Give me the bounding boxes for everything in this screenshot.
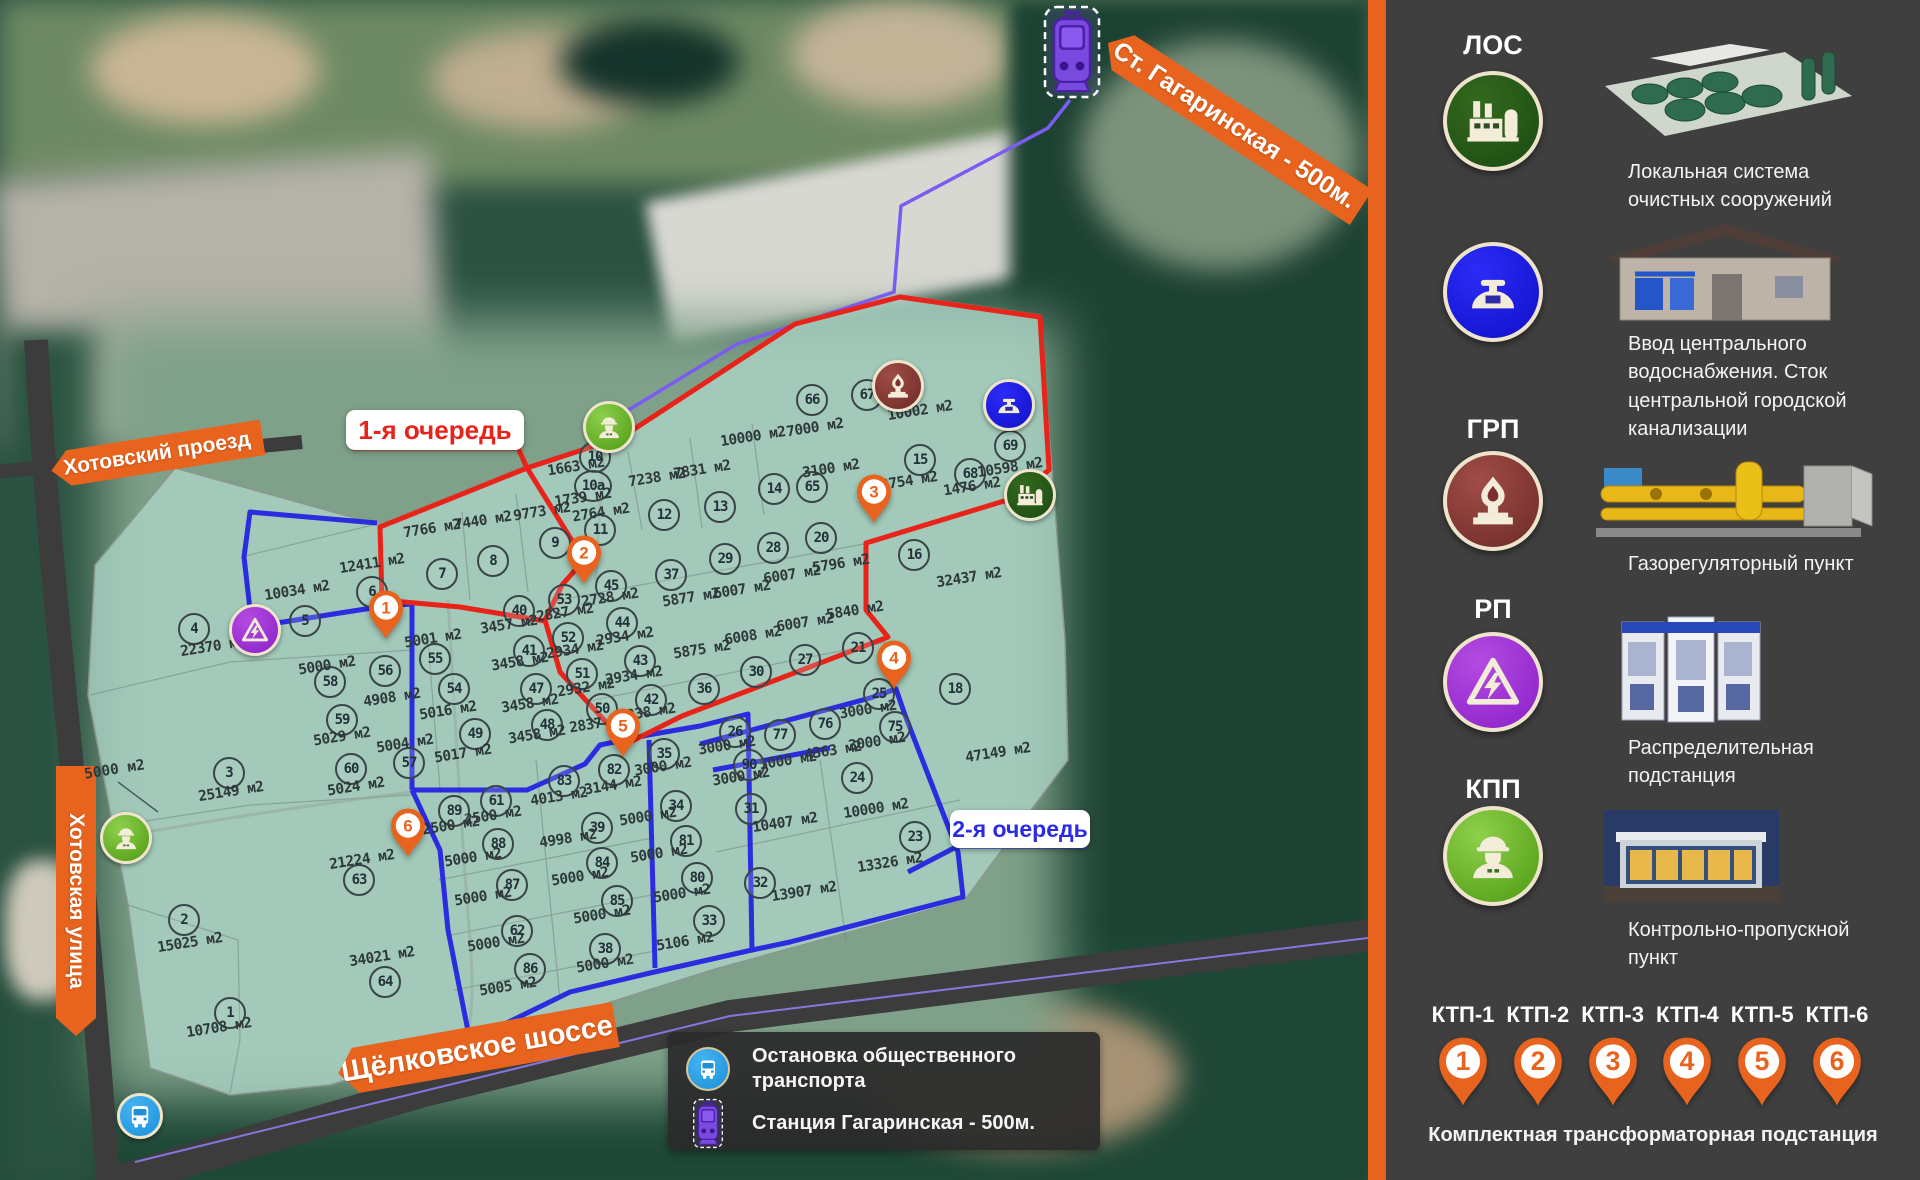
- ktp-pin: 4: [1652, 1034, 1722, 1112]
- ktp-label: КТП-5: [1727, 1002, 1797, 1028]
- ktp-pin: 3: [1578, 1034, 1648, 1112]
- kpp-photo: [1604, 810, 1779, 907]
- ktp-labels-row: КТП-1КТП-2КТП-3КТП-4КТП-5КТП-6: [1428, 1002, 1872, 1028]
- map-legend: Остановка общественного транспорта Станц…: [668, 1032, 1100, 1150]
- legend-bus-row: Остановка общественного транспорта: [686, 1044, 1052, 1094]
- factory-icon: [1443, 71, 1543, 171]
- grp-photo: [1586, 448, 1878, 553]
- section-title-los: ЛОС: [1463, 30, 1522, 61]
- water-photo: [1590, 214, 1860, 335]
- masterplan-infographic: 110708 м2215025 м2325149 м2422370 м25100…: [0, 0, 1920, 1180]
- ktp-pins-row: 123456: [1428, 1034, 1872, 1112]
- rp-photo: [1618, 612, 1768, 735]
- road-banner-ulitsa: Хотовская улица: [56, 766, 96, 1036]
- ktp-pin: 6: [1802, 1034, 1872, 1112]
- ktp-label: КТП-4: [1652, 1002, 1722, 1028]
- ktp-label: КТП-6: [1802, 1002, 1872, 1028]
- ktp-label: КТП-3: [1578, 1002, 1648, 1028]
- svg-text:1: 1: [1456, 1046, 1471, 1076]
- legend-tram-row: Станция Гагаринская - 500м.: [686, 1098, 1052, 1149]
- svg-text:6: 6: [1830, 1046, 1845, 1076]
- ktp-pin: 2: [1503, 1034, 1573, 1112]
- section-caption-water: Ввод центрального водоснабжения. Сток це…: [1628, 330, 1872, 444]
- divider-stripe: [1368, 0, 1386, 1180]
- worker-icon: [1443, 806, 1543, 906]
- section-title-kpp: КПП: [1465, 774, 1520, 805]
- valve-icon: [1443, 242, 1543, 342]
- map-area: 110708 м2215025 м2325149 м2422370 м25100…: [0, 0, 1368, 1180]
- section-caption-kpp: Контрольно-пропускной пункт: [1628, 916, 1872, 973]
- phase1-text: 1-я очередь: [358, 415, 511, 446]
- legend-tram-label: Станция Гагаринская - 500м.: [752, 1111, 1052, 1136]
- ktp-pin: 5: [1727, 1034, 1797, 1112]
- ktp-pin: 1: [1428, 1034, 1498, 1112]
- tram-station-icon: [1042, 4, 1102, 105]
- road-label: Хотовская улица: [64, 776, 88, 1026]
- svg-text:3: 3: [1605, 1046, 1620, 1076]
- phase1-label: 1-я очередь: [346, 410, 524, 450]
- legend-bus-label: Остановка общественного транспорта: [752, 1044, 1052, 1094]
- ktp-label: КТП-1: [1428, 1002, 1498, 1028]
- section-title-rp: РП: [1474, 594, 1511, 625]
- section-caption-grp: Газорегуляторный пункт: [1628, 550, 1872, 578]
- section-caption-los: Локальная система очистных сооружений: [1628, 158, 1872, 215]
- tram-icon: [686, 1098, 730, 1149]
- phase2-label: 2-я очередь: [950, 810, 1090, 848]
- section-title-grp: ГРП: [1467, 414, 1520, 445]
- los-photo: [1590, 24, 1860, 163]
- svg-text:5: 5: [1755, 1046, 1770, 1076]
- ktp-label: КТП-2: [1503, 1002, 1573, 1028]
- bus-icon: [686, 1047, 730, 1091]
- svg-text:4: 4: [1680, 1046, 1695, 1076]
- phase2-text: 2-я очередь: [952, 816, 1087, 843]
- ktp-caption: Комплектная трансформаторная подстанция: [1386, 1124, 1920, 1147]
- legend-sidebar: ЛОС Локальная система очистных сооружени…: [1386, 0, 1920, 1180]
- svg-text:2: 2: [1530, 1046, 1545, 1076]
- gas-flame-icon: [1443, 451, 1543, 551]
- high-voltage-icon: [1443, 632, 1543, 732]
- section-caption-rp: Распределительная подстанция: [1628, 734, 1872, 791]
